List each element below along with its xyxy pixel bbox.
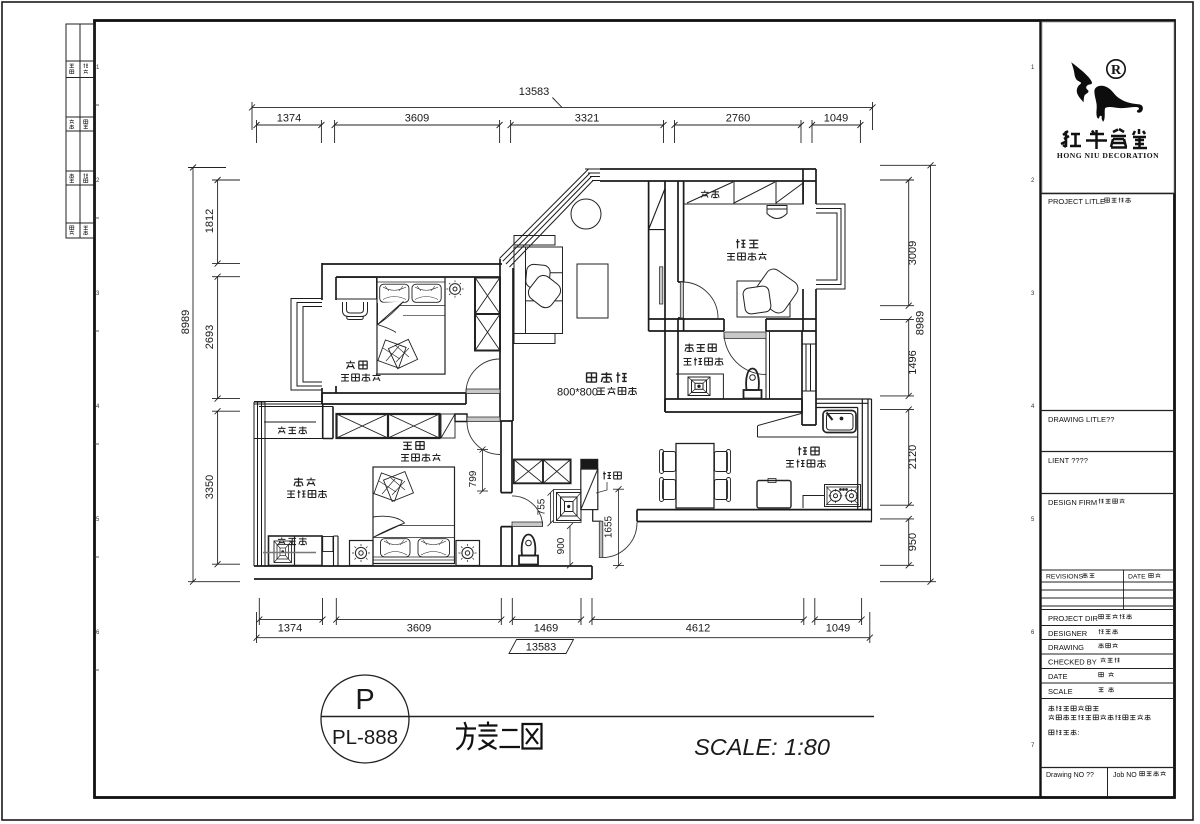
svg-text:SCALE: 1:80: SCALE: 1:80 — [694, 734, 830, 760]
svg-text:2760: 2760 — [726, 113, 750, 125]
svg-text:3009: 3009 — [907, 241, 919, 265]
svg-text:755: 755 — [537, 498, 548, 515]
svg-text:PROJECT LITLE: PROJECT LITLE — [1048, 197, 1105, 206]
svg-text:799: 799 — [468, 470, 479, 487]
svg-text:3609: 3609 — [407, 623, 431, 635]
svg-text:PROJECT DIR: PROJECT DIR — [1048, 614, 1098, 623]
svg-text:DATE: DATE — [1128, 574, 1146, 581]
svg-text:4612: 4612 — [686, 623, 710, 635]
svg-text:950: 950 — [907, 533, 919, 551]
svg-text:3609: 3609 — [405, 113, 429, 125]
svg-text:1469: 1469 — [534, 623, 558, 635]
svg-text:2693: 2693 — [204, 325, 216, 349]
svg-text:3321: 3321 — [575, 113, 599, 125]
svg-text:Drawing NO ??: Drawing NO ?? — [1046, 772, 1094, 779]
svg-text:2120: 2120 — [907, 445, 919, 469]
svg-text:13583: 13583 — [519, 86, 550, 98]
svg-text:DRAWING LITLE??: DRAWING LITLE?? — [1048, 415, 1114, 424]
svg-text:R: R — [1111, 63, 1122, 78]
svg-text:DATE: DATE — [1048, 672, 1067, 681]
svg-text:13583: 13583 — [526, 642, 557, 654]
svg-text:REVISIONS: REVISIONS — [1046, 574, 1083, 581]
svg-text:1374: 1374 — [277, 113, 301, 125]
svg-text:HONG NIU DECORATION: HONG NIU DECORATION — [1057, 151, 1159, 160]
svg-text:Job NO: Job NO — [1113, 772, 1137, 779]
svg-text:800*800: 800*800 — [557, 387, 598, 399]
svg-text:1655: 1655 — [604, 515, 615, 538]
svg-text:3350: 3350 — [204, 475, 216, 499]
svg-text::: : — [1078, 730, 1080, 737]
svg-text:SCALE: SCALE — [1048, 687, 1073, 696]
svg-text:1374: 1374 — [278, 623, 302, 635]
svg-text:1049: 1049 — [826, 623, 850, 635]
svg-text:DRAWING: DRAWING — [1048, 643, 1084, 652]
svg-text:PL-888: PL-888 — [332, 726, 398, 749]
svg-text:P: P — [355, 684, 374, 716]
svg-text:LIENT ????: LIENT ???? — [1048, 456, 1088, 465]
svg-text:CHECKED BY: CHECKED BY — [1048, 658, 1097, 667]
svg-text:900: 900 — [556, 537, 567, 554]
svg-text:1496: 1496 — [907, 350, 919, 374]
svg-text:DESIGNER: DESIGNER — [1048, 629, 1088, 638]
svg-text:1812: 1812 — [204, 209, 216, 233]
svg-text:1049: 1049 — [824, 113, 848, 125]
svg-text:8989: 8989 — [915, 311, 927, 335]
svg-text:8989: 8989 — [180, 310, 192, 334]
svg-text:DESIGN FIRM: DESIGN FIRM — [1048, 498, 1097, 507]
